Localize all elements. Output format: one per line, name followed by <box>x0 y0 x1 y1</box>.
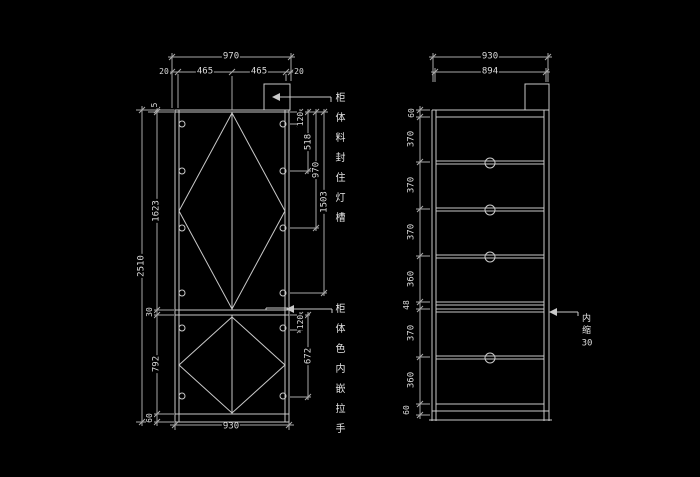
dim-front-seg-465-left: 465 <box>196 68 214 77</box>
dim-side-chain-370-4: 370 <box>408 324 417 342</box>
side-light-trough-box <box>525 84 549 110</box>
dim-front-bottom-width: 930 <box>222 423 240 432</box>
front-mid-divider <box>175 310 289 315</box>
dim-side-chain-360-2: 360 <box>408 371 417 389</box>
handle-leader-arrow <box>286 305 294 313</box>
side-shelves <box>436 161 544 359</box>
side-left-wall <box>432 110 436 421</box>
front-view-geometry <box>175 84 290 422</box>
dim-side-chain-60-bottom: 60 <box>403 404 411 416</box>
drawing-linework <box>0 0 700 477</box>
dim-front-hole-518: 518 <box>305 133 314 151</box>
dim-front-chain-60: 60 <box>146 412 154 424</box>
handle-leader <box>291 309 332 313</box>
dim-front-seg-465-right: 465 <box>250 68 268 77</box>
dim-front-chain-30: 30 <box>146 306 154 318</box>
dim-side-chain-370-3: 370 <box>408 223 417 241</box>
dim-side-chain-48: 48 <box>403 299 411 311</box>
side-bottom-panel <box>429 404 552 420</box>
dim-side-inner-width: 894 <box>481 68 499 77</box>
side-shelf-pins <box>485 158 495 363</box>
side-view-geometry <box>429 84 552 421</box>
inset-leader-arrow <box>549 308 557 316</box>
dim-front-seg-20-left: 20 <box>158 68 170 76</box>
dim-front-chain-792: 792 <box>153 355 162 373</box>
dim-front-seg-20-right: 20 <box>293 68 305 76</box>
dim-front-chain-5: 5 <box>151 102 159 109</box>
dim-side-overall-width: 930 <box>481 53 499 62</box>
dim-front-overall-width: 970 <box>222 53 240 62</box>
dim-front-overall-height: 2510 <box>138 254 147 278</box>
side-view-leader <box>549 308 578 316</box>
cad-canvas: 970 20 465 465 20 2510 5 1623 30 792 60 … <box>0 0 700 477</box>
dim-front-hole-120-lower: 120 <box>297 314 305 330</box>
note-handle: 柜体色内嵌拉手 <box>333 303 343 443</box>
dim-front-hole-1503: 1503 <box>321 190 330 214</box>
side-dim-ticks <box>417 54 551 418</box>
dim-side-chain-60-top: 60 <box>408 107 416 119</box>
dim-front-hole-970: 970 <box>313 161 322 179</box>
dim-side-chain-370-1: 370 <box>408 130 417 148</box>
dim-front-hole-120: 120 <box>297 111 305 127</box>
note-inset-label: 内缩 <box>580 313 589 337</box>
dim-side-chain-370-2: 370 <box>408 176 417 194</box>
light-trough-leader-arrow <box>272 93 280 101</box>
side-right-wall <box>544 110 549 421</box>
note-inset-value: 30 <box>581 340 594 349</box>
dim-side-chain-360-1: 360 <box>408 270 417 288</box>
dim-front-chain-1623: 1623 <box>153 199 162 223</box>
dim-front-hole-672: 672 <box>305 347 314 365</box>
side-top-panel <box>432 110 549 117</box>
light-trough-leader <box>278 97 331 102</box>
note-light-trough: 柜体料封住灯槽 <box>333 92 343 232</box>
